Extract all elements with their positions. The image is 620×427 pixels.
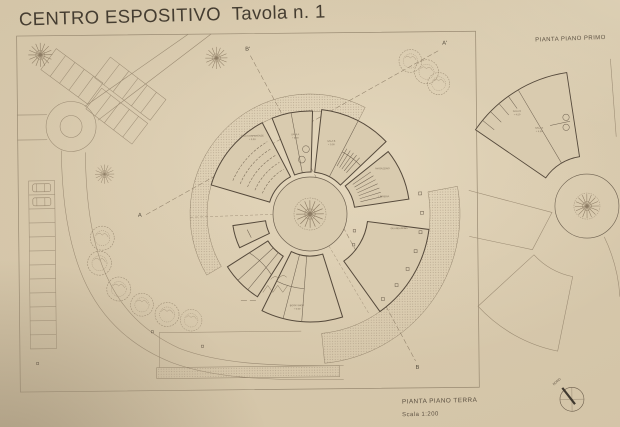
- parking-lot-top: [41, 48, 167, 145]
- round-tree-icon: [414, 60, 438, 84]
- round-tree-icon: [155, 302, 179, 326]
- room-level: + 4.50: [514, 113, 521, 116]
- drawing-photo: CENTRO ESPOSITIVO Tavola n. 1 PIANTA PIA…: [0, 0, 620, 427]
- first-floor-plan: SALA D + 4.50 SALA E + 4.50: [467, 59, 620, 352]
- section-marker-a: A: [138, 213, 142, 219]
- conifer-tree-icon: [95, 164, 114, 183]
- round-tree-icon: [399, 49, 422, 72]
- roundabout: [46, 101, 97, 152]
- room-label: MAGAZZINO: [375, 167, 389, 170]
- round-tree-icon: [90, 226, 114, 250]
- courtyard-tree-icon: [296, 200, 324, 228]
- room-level: + 4.50: [536, 130, 543, 133]
- scale-caption: Scala 1:200: [402, 411, 439, 418]
- architectural-plan-svg: SALA CONFERENZE + 0.00 SALA A + 0.00 SAL…: [0, 0, 620, 427]
- section-marker-b-prime: B': [245, 47, 250, 53]
- room-label: GUARDAROBA: [391, 227, 408, 230]
- first-floor-outline-west: [469, 189, 553, 250]
- round-tree-icon: [130, 293, 153, 316]
- courtyard-tree-icon: [575, 194, 599, 218]
- section-marker-b: B: [416, 365, 420, 371]
- section-marker-a-prime: A': [442, 41, 447, 47]
- round-tree-icon: [427, 72, 449, 94]
- car-icon: [33, 184, 51, 192]
- first-floor-wedge: [475, 72, 580, 178]
- round-tree-icon: [180, 309, 202, 331]
- conifer-tree-icon: [205, 47, 227, 69]
- north-needle: [562, 388, 575, 405]
- paved-path-strip: [157, 366, 340, 379]
- room-level: + 0.00: [249, 138, 256, 141]
- round-tree-icon: [87, 251, 111, 275]
- north-compass: NORD: [552, 376, 584, 411]
- conifer-tree-icon: [28, 43, 52, 67]
- drawing-sheet: CENTRO ESPOSITIVO Tavola n. 1 PIANTA PIA…: [0, 0, 620, 427]
- room-level: + 0.00: [294, 308, 301, 311]
- drawing-frame: [17, 31, 480, 392]
- plaza-edge: [159, 331, 301, 367]
- north-label: NORD: [552, 377, 562, 387]
- room-level: + 0.00: [328, 143, 335, 146]
- parking-lot-left: [29, 181, 57, 349]
- room-label: LIBRERIA: [378, 195, 389, 198]
- car-icon: [33, 198, 51, 206]
- room-level: + 0.00: [292, 137, 299, 140]
- first-floor-outline-south: [477, 254, 573, 351]
- round-tree-icon: [107, 277, 131, 301]
